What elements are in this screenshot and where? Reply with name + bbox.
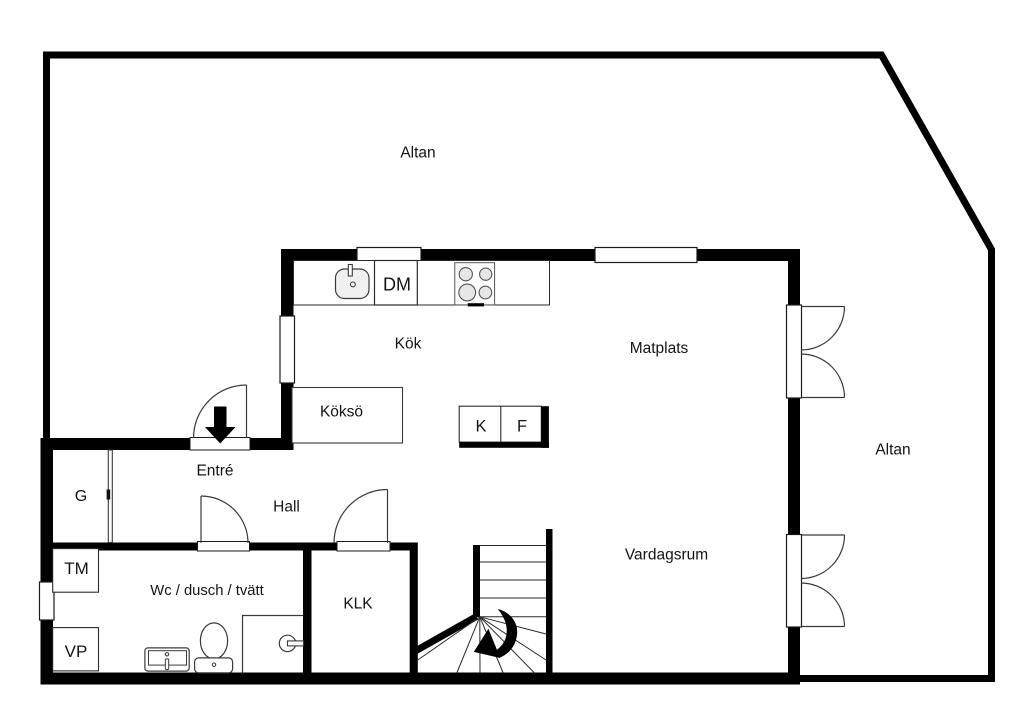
svg-text:VP: VP bbox=[65, 642, 88, 661]
svg-text:Kök: Kök bbox=[395, 336, 422, 353]
svg-text:TM: TM bbox=[64, 559, 89, 578]
svg-text:K: K bbox=[475, 418, 486, 436]
svg-text:F: F bbox=[517, 418, 527, 436]
svg-text:Köksö: Köksö bbox=[320, 404, 363, 421]
svg-text:Altan: Altan bbox=[875, 442, 910, 459]
svg-text:Entré: Entré bbox=[196, 463, 233, 480]
svg-text:G: G bbox=[75, 488, 87, 505]
svg-text:KLK: KLK bbox=[343, 596, 373, 613]
svg-text:Wc / dusch / tvätt: Wc / dusch / tvätt bbox=[150, 583, 263, 599]
svg-text:Altan: Altan bbox=[400, 145, 435, 162]
svg-text:Vardagsrum: Vardagsrum bbox=[625, 547, 708, 564]
svg-text:Matplats: Matplats bbox=[630, 340, 689, 357]
svg-text:Hall: Hall bbox=[273, 499, 300, 516]
svg-text:DM: DM bbox=[383, 275, 411, 295]
